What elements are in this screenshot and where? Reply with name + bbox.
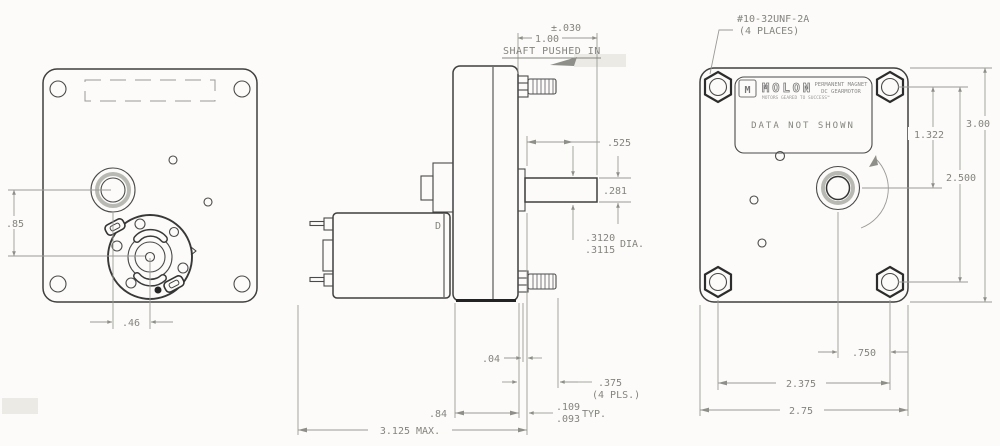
dim-046: .46 [122,318,140,329]
dim-275: 2.75 [789,406,813,417]
dim-2500: 2.500 [946,173,976,184]
retaining-clip [104,217,127,236]
dim-3125: 3.125 MAX. [380,426,440,437]
back-view: M MOLON MOTORS GEARED TO SUCCESS™ PERMAN… [700,14,996,417]
type-line-1: PERMANENT MAGNET [815,82,869,88]
terminal-bottom [324,274,333,286]
motor-label-d: D [435,221,441,232]
index-dot [155,287,162,294]
pin-hole [750,196,758,204]
idler-shaft-end [204,198,212,206]
dim-dia-hi: .3120 [585,233,615,244]
thread-callout: #10-32UNF-2A (4 PLACES) [710,14,809,74]
hex-nut [705,72,731,102]
data-note: DATA NOT SHOWN [751,121,855,131]
back-plate [700,68,908,302]
dim-375-note: (4 PLS.) [592,390,640,401]
drawing-canvas: .85 .46 [0,0,1000,446]
brand-tagline: MOTORS GEARED TO SUCCESS™ [762,95,830,101]
dim-109: .109 [556,402,580,413]
dim-750: .750 [852,348,876,359]
rotation-arrow [861,158,888,228]
dim-tol: ±.030 [551,23,581,34]
dim-dia-lo: .3115 [585,245,615,256]
shaft-boss [518,169,525,211]
corner-hole [234,81,250,97]
gearbox-housing [453,66,518,301]
thread-spec: #10-32UNF-2A [737,14,809,25]
dim-525: .525 [607,138,631,149]
mounting-stud-top [518,76,556,97]
engineering-drawing-gearmotor: .85 .46 [0,0,1000,446]
back-right-dimensions: 1.322 2.500 3.00 [862,68,996,302]
hex-nut [705,267,731,297]
front-dimensions: .85 .46 [3,190,173,329]
motor-body: D [310,213,450,298]
dim-093: .093 [556,414,580,425]
shaft-detail-dimensions: .525 .281 .3120 .3115 DIA. [527,136,644,256]
dim-1322: 1.322 [914,130,944,141]
rear-bearing-boss [433,163,453,212]
front-view: .85 .46 [3,69,257,329]
terminal-top [324,218,333,230]
rear-bearing-boss-tip [421,176,433,200]
terminal-pin-top [310,222,324,226]
nameplate-label: M MOLON MOTORS GEARED TO SUCCESS™ PERMAN… [735,77,872,153]
scan-smudge [2,398,38,414]
logo-letter: M [744,85,750,96]
dim-2375: 2.375 [786,379,816,390]
hidden-slot-dashed [85,80,215,101]
dim-300: 3.00 [966,119,990,130]
dim-281: .281 [603,186,627,197]
thread-places: (4 PLACES) [739,26,799,37]
shaft-hub [817,167,860,210]
dim-84: .84 [429,409,447,420]
terminal-pin-bottom [310,278,324,282]
dim-375: .375 [598,378,622,389]
corner-hole [50,276,66,292]
rotation-arrowhead [869,155,878,167]
corner-hole [234,276,250,292]
dim-100: 1.00 [535,34,559,45]
back-bottom-dimensions: .750 2.375 2.75 [700,212,908,417]
dim-dia-label: DIA. [620,239,644,250]
dim-typ: TYP. [582,409,606,420]
dim-085: .85 [6,219,24,230]
side-view: D 1.00 ±.030 SHAFT PUSHED IN .525 [298,23,644,437]
pin-hole [758,239,766,247]
shaft-length-dimension: 1.00 ±.030 SHAFT PUSHED IN [502,23,601,175]
shaft-note: SHAFT PUSHED IN [503,46,601,57]
brush-cap [323,240,333,271]
dim-04: .04 [482,354,500,365]
brand-name: MOLON [762,81,813,95]
mounting-stud-bottom [518,271,556,292]
corner-hole [50,81,66,97]
idler-shaft-end [169,156,177,164]
type-line-2: DC GEARMOTOR [821,89,861,95]
output-shaft [525,178,597,202]
